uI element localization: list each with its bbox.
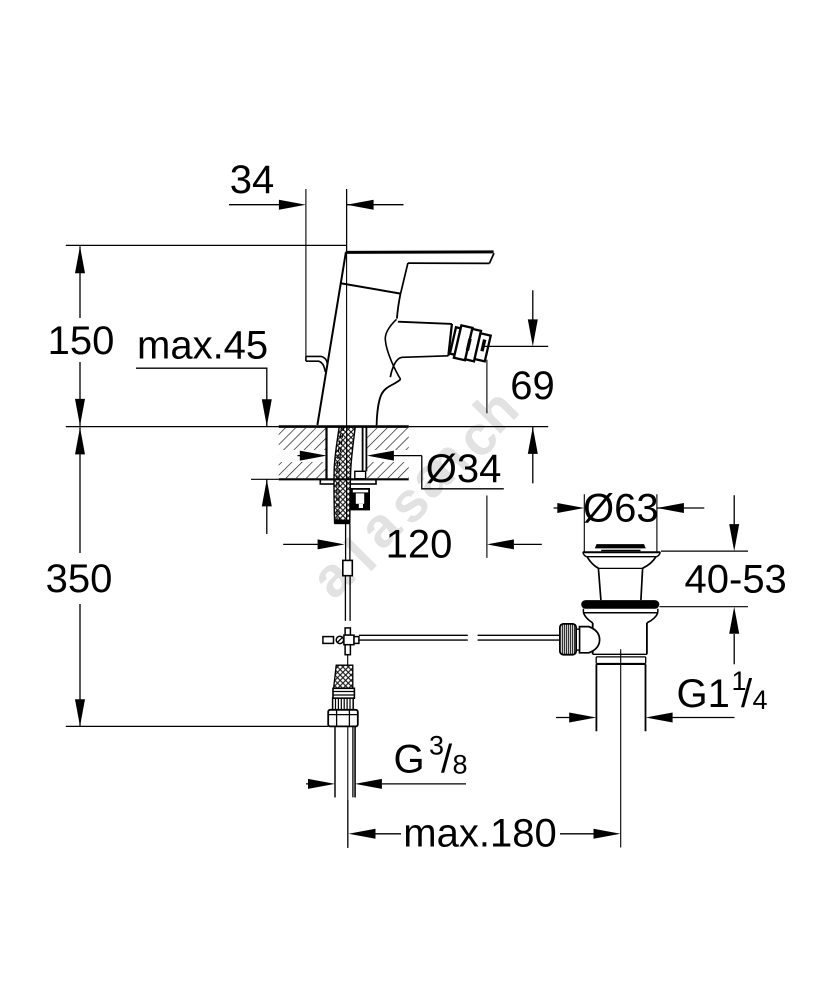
svg-text:350: 350	[46, 557, 113, 601]
svg-text:/: /	[741, 672, 753, 716]
svg-text:4: 4	[753, 685, 768, 715]
svg-text:G: G	[394, 738, 425, 782]
svg-text:G1: G1	[677, 672, 730, 716]
svg-text:69: 69	[510, 364, 555, 408]
svg-text:34: 34	[230, 158, 275, 202]
svg-text:120: 120	[386, 523, 453, 567]
svg-text:Ø34: Ø34	[426, 447, 502, 491]
svg-text:Ø63: Ø63	[583, 487, 659, 531]
svg-text:max.45: max.45	[137, 324, 268, 368]
svg-text:40-53: 40-53	[685, 558, 787, 602]
svg-text:150: 150	[48, 319, 115, 363]
svg-text:8: 8	[453, 750, 468, 780]
svg-text:/: /	[441, 738, 453, 782]
svg-text:max.180: max.180	[403, 812, 556, 856]
